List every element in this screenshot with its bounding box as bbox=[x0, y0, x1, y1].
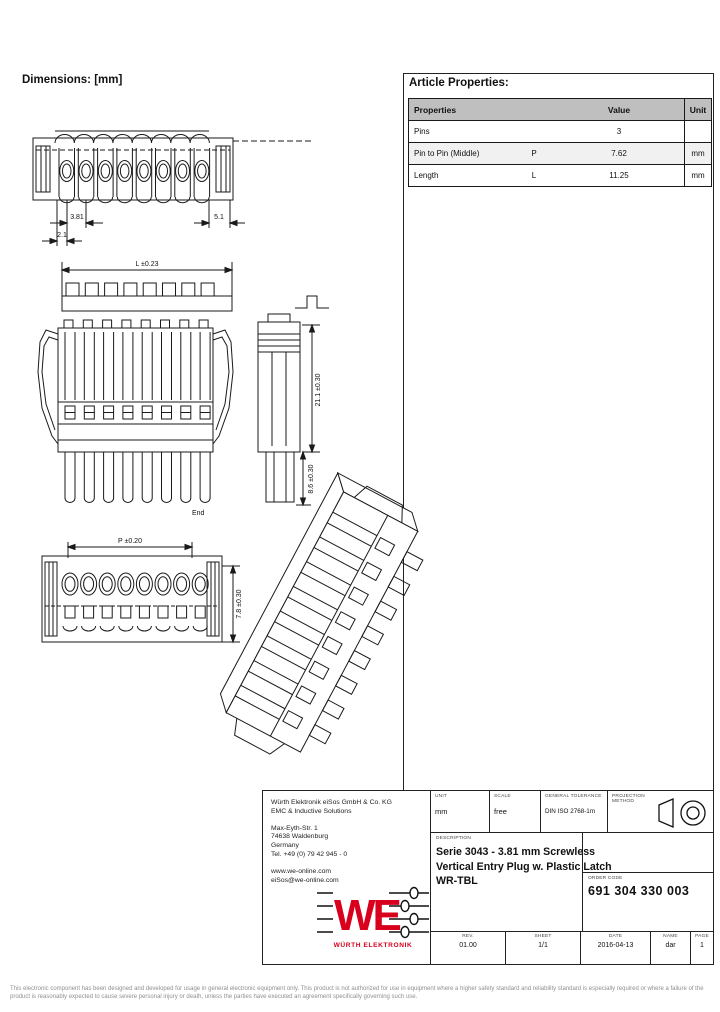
row-unit bbox=[684, 121, 711, 142]
projection-cell: PROJECTION METHOD bbox=[608, 791, 713, 833]
date-value: 2016-04-13 bbox=[584, 942, 647, 949]
projection-method-icon bbox=[655, 797, 707, 829]
scale-cell: SCALE free bbox=[490, 791, 541, 833]
logo-we-text: WE bbox=[334, 891, 401, 940]
projection-label: PROJECTION METHOD bbox=[612, 794, 654, 804]
front-view-drawing: 3.81 2.1 5.1 bbox=[33, 131, 313, 246]
description-line-3: WR-TBL bbox=[436, 874, 577, 889]
table-row: Pins 3 bbox=[409, 121, 711, 143]
dim-pitch-label: 3.81 bbox=[70, 214, 84, 221]
sheet-cell: SHEET 1/1 bbox=[506, 931, 581, 964]
row-value: 7.62 bbox=[554, 149, 684, 158]
description-cell: DESCRIPTION Serie 3043 - 3.81 mm Screwle… bbox=[431, 833, 583, 931]
company-address: Würth Elektronik eiSos GmbH & Co. KG EMC… bbox=[271, 799, 392, 885]
dim-length-label: L ±0.23 bbox=[135, 261, 158, 268]
name-value: dar bbox=[654, 942, 687, 949]
tolerance-cell: GENERAL TOLERANCE DIN ISO 2768-1m bbox=[541, 791, 608, 833]
rev-cell: REV. 01.00 bbox=[431, 931, 506, 964]
description-line-1: Serie 3043 - 3.81 mm Screwless bbox=[436, 845, 577, 860]
dim-front-height-label: 7.8 ±0.30 bbox=[236, 589, 243, 618]
order-code-label: ORDER CODE bbox=[588, 876, 708, 881]
row-symbol: L bbox=[514, 171, 554, 180]
order-code-cell: ORDER CODE 691 304 330 003 bbox=[583, 873, 713, 931]
scale-label: SCALE bbox=[494, 794, 536, 799]
dim-end-width-label: 5.1 bbox=[214, 214, 224, 221]
title-block: Würth Elektronik eiSos GmbH & Co. KG EMC… bbox=[262, 790, 714, 965]
name-cell: NAME dar bbox=[651, 931, 691, 964]
technical-drawings: 3.81 2.1 5.1 L ±0.23 bbox=[0, 0, 430, 790]
dim-depth-label: 8.6 ±0.30 bbox=[308, 464, 315, 493]
unit-label: UNIT bbox=[435, 794, 485, 799]
order-code-value: 691 304 330 003 bbox=[588, 884, 708, 898]
table-header-row: Properties Value Unit bbox=[409, 99, 711, 121]
spare-cell bbox=[583, 833, 713, 873]
tolerance-value: DIN ISO 2768-1m bbox=[545, 808, 603, 815]
col-header-unit: Unit bbox=[684, 99, 711, 120]
unit-cell: UNIT mm bbox=[431, 791, 490, 833]
company-website: www.we-online.com bbox=[271, 868, 392, 877]
dim-height-label: 21.1 ±0.30 bbox=[315, 373, 322, 406]
row-unit: mm bbox=[684, 165, 711, 186]
description-line-2: Vertical Entry Plug w. Plastic Latch bbox=[436, 860, 577, 875]
table-row: Length L 11.25 mm bbox=[409, 165, 711, 186]
company-cell: Würth Elektronik eiSos GmbH & Co. KG EMC… bbox=[263, 791, 431, 964]
wuerth-elektronik-logo: WE bbox=[317, 883, 429, 941]
description-label: DESCRIPTION bbox=[436, 836, 577, 841]
row-symbol: P bbox=[514, 149, 554, 158]
row-value: 11.25 bbox=[554, 171, 684, 180]
datasheet-page: { "header": { "dimensions_label": "Dimen… bbox=[0, 0, 720, 1012]
end-label: End bbox=[192, 510, 205, 517]
side-view-drawing: End 21.1 ±0.30 8.6 ±0.30 bbox=[38, 314, 322, 517]
dim-offset-label: 2.1 bbox=[57, 232, 67, 239]
bottom-front-view-drawing: P ±0.20 7.8 ±0.30 bbox=[42, 538, 243, 642]
dim-pin-spacing-label: P ±0.20 bbox=[118, 538, 142, 545]
row-unit: mm bbox=[684, 143, 711, 164]
unit-value: mm bbox=[435, 807, 485, 816]
date-cell: DATE 2016-04-13 bbox=[581, 931, 651, 964]
legal-disclaimer: This electronic component has been desig… bbox=[10, 986, 710, 1001]
scale-value: free bbox=[494, 807, 536, 816]
table-row: Pin to Pin (Middle) P 7.62 mm bbox=[409, 143, 711, 165]
tolerance-label: GENERAL TOLERANCE bbox=[545, 794, 603, 799]
page-cell: PAGE 1 bbox=[691, 931, 713, 964]
rev-value: 01.00 bbox=[434, 942, 502, 949]
article-properties-table: Properties Value Unit Pins 3 Pin to Pin … bbox=[408, 98, 712, 187]
col-header-value: Value bbox=[554, 105, 684, 115]
isometric-view-drawing bbox=[206, 471, 430, 774]
row-value: 3 bbox=[554, 127, 684, 136]
top-view-drawing: L ±0.23 bbox=[62, 261, 329, 311]
company-name: Würth Elektronik eiSos GmbH & Co. KG bbox=[271, 799, 392, 808]
page-value: 1 bbox=[694, 942, 710, 949]
logo-subtext: WÜRTH ELEKTRONIK bbox=[317, 942, 429, 949]
sheet-value: 1/1 bbox=[509, 942, 577, 949]
